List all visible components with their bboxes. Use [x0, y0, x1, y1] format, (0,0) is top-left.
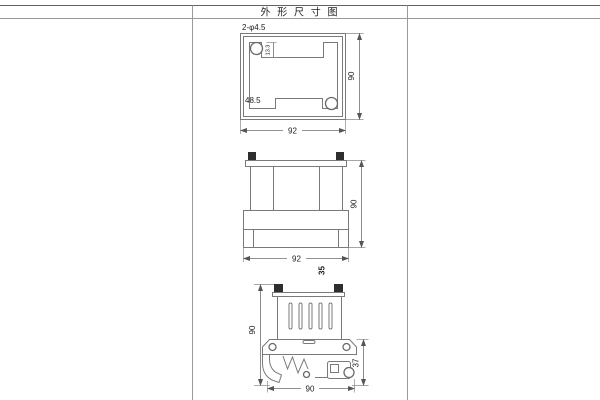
side-view-foot-left	[274, 284, 283, 292]
top-view: 2-φ4.5 13.3 48.5 90 92	[241, 23, 364, 136]
dimension-drawing-canvas: 外 形 尺 寸 图 2-φ4.5 13.3 48.5 90 92	[0, 0, 600, 400]
notch-depth-dim: 13.3	[266, 45, 272, 56]
rail-clip-hook	[263, 355, 282, 383]
hole-callout-label: 2-φ4.5	[242, 23, 266, 32]
top-view-cavity-contour	[250, 43, 338, 109]
bracket-hole-right	[343, 344, 350, 351]
vent-slot-3	[309, 303, 312, 329]
front-view-depth-dim: 35	[318, 266, 327, 275]
rail-latch-roller	[344, 368, 354, 378]
rail-clip-spring	[283, 356, 308, 373]
vent-slot-2	[299, 303, 302, 329]
sheet-frame: 外 形 尺 寸 图	[0, 6, 600, 400]
vent-slot-5	[329, 303, 332, 329]
side-view-foot-right	[334, 284, 343, 292]
front-view-body	[251, 167, 343, 211]
front-view-foot-right	[336, 152, 344, 160]
side-view-height-dim: 90	[248, 325, 257, 334]
front-view-top-strip	[246, 161, 347, 167]
front-view-height-dim: 90	[350, 199, 359, 208]
mounting-hole-bottom-right	[326, 98, 338, 110]
bracket-hole-left	[269, 344, 276, 351]
vent-slot-4	[319, 303, 322, 329]
rail-latch-detail	[331, 365, 339, 373]
side-view-bracket-dim: 37	[352, 358, 361, 367]
inner-dim-label: 48.5	[245, 96, 261, 105]
mounting-hole-top-left	[251, 43, 263, 55]
top-view-height-dim: 90	[347, 71, 356, 80]
drawing-title: 外 形 尺 寸 图	[260, 6, 339, 19]
bracket-center-slot	[303, 341, 315, 344]
rail-clip-pin	[304, 372, 310, 378]
front-view: 90 92 35	[244, 152, 366, 275]
front-view-width-dim: 92	[292, 255, 301, 264]
top-view-width-dim: 92	[288, 127, 297, 136]
side-view: 90 37 90	[248, 284, 369, 394]
vent-slot-1	[289, 303, 292, 329]
front-view-foot-left	[248, 152, 256, 160]
side-view-width-dim: 90	[306, 385, 315, 394]
side-view-top-strip	[273, 293, 345, 297]
